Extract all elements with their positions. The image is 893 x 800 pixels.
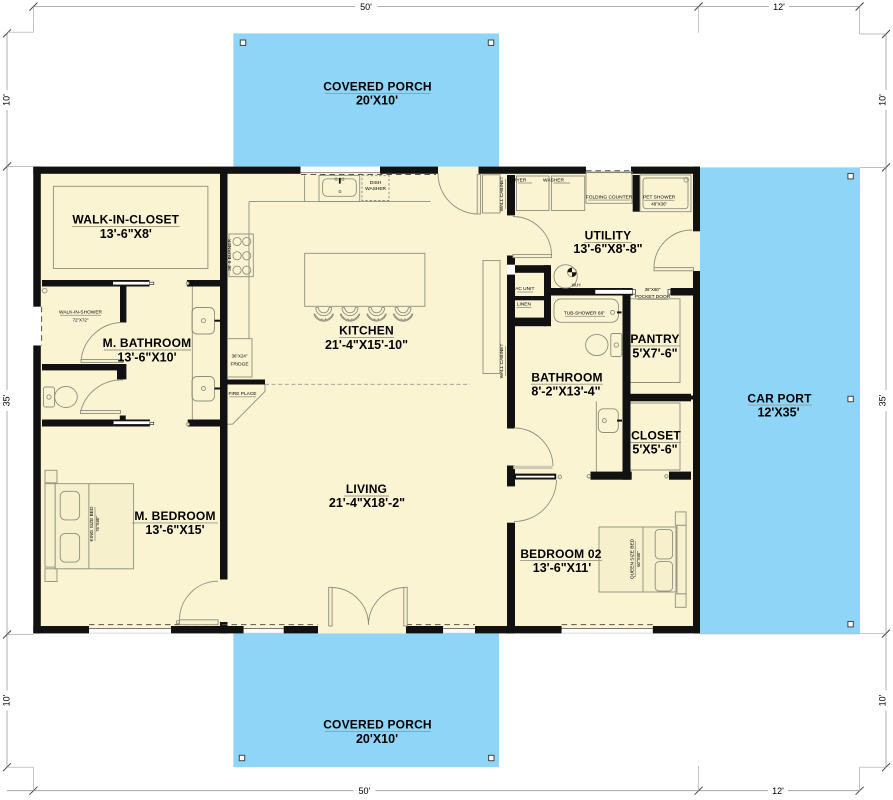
svg-text:8'-2"X13'-4": 8'-2"X13'-4" (531, 385, 600, 399)
svg-text:FIRE PLACE: FIRE PLACE (229, 391, 257, 397)
svg-text:DISH: DISH (370, 180, 382, 186)
svg-text:72"X72": 72"X72" (73, 318, 89, 323)
svg-text:5'X5'-6": 5'X5'-6" (632, 443, 677, 457)
svg-text:36"X24": 36"X24" (232, 354, 248, 359)
svg-text:QUEEN SIZE BED: QUEEN SIZE BED (630, 538, 636, 579)
svg-text:WALL CABINET: WALL CABINET (499, 177, 505, 212)
svg-text:LIVING: LIVING (346, 482, 387, 496)
svg-text:10': 10' (878, 694, 888, 706)
svg-text:76"X80": 76"X80" (95, 516, 100, 532)
svg-text:DRYER: DRYER (510, 177, 527, 183)
svg-text:CAR PORT: CAR PORT (747, 391, 812, 405)
svg-text:20'X10': 20'X10' (356, 94, 398, 108)
svg-text:13'-6"X8'-8": 13'-6"X8'-8" (573, 242, 642, 256)
svg-text:LINEN: LINEN (517, 302, 532, 308)
svg-text:10': 10' (2, 94, 12, 106)
svg-text:UTILITY: UTILITY (585, 229, 632, 243)
svg-text:COVERED PORCH: COVERED PORCH (323, 80, 432, 94)
svg-text:FRIDGE: FRIDGE (230, 362, 248, 368)
svg-text:21'-4"X15'-10": 21'-4"X15'-10" (325, 338, 408, 352)
svg-text:KITCHEN: KITCHEN (339, 323, 394, 337)
svg-text:WASHER: WASHER (543, 177, 564, 183)
svg-text:FOLDING COUNTER: FOLDING COUNTER (586, 194, 633, 200)
svg-text:COVERED PORCH: COVERED PORCH (323, 718, 432, 732)
svg-text:M. BEDROOM: M. BEDROOM (134, 509, 215, 523)
svg-text:12': 12' (772, 786, 784, 796)
svg-text:WASHER: WASHER (365, 186, 386, 192)
svg-text:35': 35' (878, 394, 888, 406)
svg-text:35': 35' (2, 394, 12, 406)
svg-text:20'X10': 20'X10' (356, 732, 398, 746)
svg-text:36"X80": 36"X80" (645, 287, 661, 292)
svg-text:36' 6 BURNER: 36' 6 BURNER (227, 239, 233, 271)
svg-text:CLOSET: CLOSET (631, 429, 681, 443)
svg-text:PET SHOWER: PET SHOWER (643, 195, 676, 201)
svg-text:60"X80": 60"X80" (636, 551, 641, 567)
svg-text:5'X7'-6": 5'X7'-6" (632, 346, 677, 360)
svg-text:50': 50' (359, 786, 371, 796)
svg-text:48"X36": 48"X36" (651, 201, 667, 206)
svg-text:PANTRY: PANTRY (630, 332, 679, 346)
svg-text:21'-4"X18'-2": 21'-4"X18'-2" (329, 496, 405, 510)
svg-text:12'X35': 12'X35' (757, 406, 799, 420)
svg-text:50': 50' (360, 2, 372, 12)
svg-text:13'-6"X11': 13'-6"X11' (533, 561, 591, 575)
svg-text:WALK-IN-SHOWER: WALK-IN-SHOWER (59, 310, 103, 316)
svg-text:13'-6"X8': 13'-6"X8' (100, 227, 152, 241)
svg-text:POCKET DOOR: POCKET DOOR (635, 294, 671, 300)
svg-text:BEDROOM 02: BEDROOM 02 (520, 547, 601, 561)
svg-text:13'-6"X10': 13'-6"X10' (117, 351, 176, 365)
svg-text:W.H: W.H (572, 282, 582, 288)
svg-text:13'-6"X15': 13'-6"X15' (145, 523, 204, 537)
svg-text:WALK-IN-CLOSET: WALK-IN-CLOSET (72, 213, 179, 227)
svg-text:AC UNIT: AC UNIT (515, 286, 534, 292)
svg-text:M. BATHROOM: M. BATHROOM (103, 336, 192, 350)
svg-text:10': 10' (878, 94, 888, 106)
svg-text:BATHROOM: BATHROOM (531, 370, 602, 384)
svg-text:TUB-SHOWER 66": TUB-SHOWER 66" (564, 311, 605, 317)
svg-text:WALL CABINET: WALL CABINET (499, 344, 505, 379)
svg-text:12': 12' (773, 2, 785, 12)
svg-text:10': 10' (2, 694, 12, 706)
